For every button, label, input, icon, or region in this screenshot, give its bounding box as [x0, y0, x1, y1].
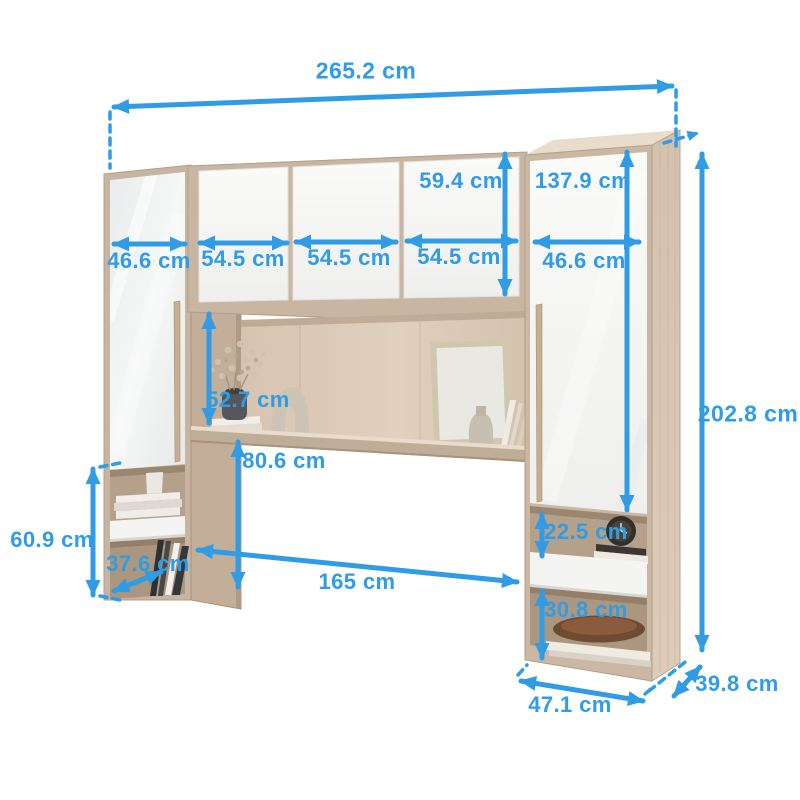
dim-right-top-opening: 22.5 cm [544, 519, 628, 545]
dim-right-door-height: 137.9 cm [535, 168, 631, 194]
dim-niche-height: 52.7 cm [206, 387, 290, 413]
dim-top-door1-width: 54.5 cm [201, 246, 285, 272]
dim-total-width: 265.2 cm [316, 58, 416, 85]
right-door-handle [536, 304, 542, 502]
left-wardrobe [104, 165, 191, 600]
overhead-door-2 [293, 162, 399, 300]
dim-total-height: 202.8 cm [698, 401, 798, 428]
dim-right-unit-width: 47.1 cm [528, 692, 612, 718]
furniture-dimension-diagram: 265.2 cm 59.4 cm 137.9 cm 46.6 cm 54.5 c… [0, 0, 800, 800]
furniture-illustration [0, 0, 800, 800]
dim-left-unit-depth: 37.6 cm [106, 551, 190, 577]
dim-top-door2-width: 54.5 cm [307, 245, 391, 271]
right-side-panel [652, 130, 680, 681]
dim-left-unit-height: 60.9 cm [10, 527, 94, 553]
dim-opening-width: 165 cm [318, 569, 395, 595]
dim-top-door3-width: 54.5 cm [417, 244, 501, 270]
dim-right-door-width: 46.6 cm [542, 248, 626, 274]
left-shelf-vase [146, 472, 163, 494]
left-door-handle [174, 301, 180, 462]
dim-left-door-width: 46.6 cm [107, 248, 191, 274]
dim-unit-depth: 39.8 cm [695, 671, 779, 697]
dim-right-bottom-opening: 30.8 cm [544, 597, 628, 623]
overhead-door-1 [199, 167, 288, 302]
dim-under-shelf-height: 80.6 cm [242, 448, 326, 474]
support-pillar [191, 303, 241, 609]
dim-line-total-width [114, 86, 672, 107]
dim-top-door-height: 59.4 cm [419, 168, 503, 194]
